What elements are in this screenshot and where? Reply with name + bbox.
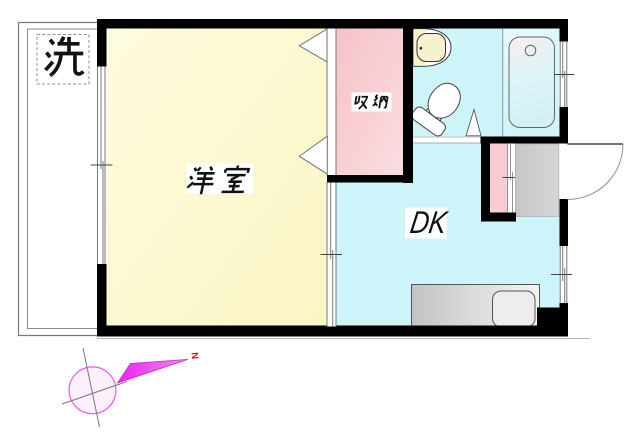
svg-text:N: N: [189, 352, 201, 360]
svg-text:DK: DK: [408, 206, 451, 241]
